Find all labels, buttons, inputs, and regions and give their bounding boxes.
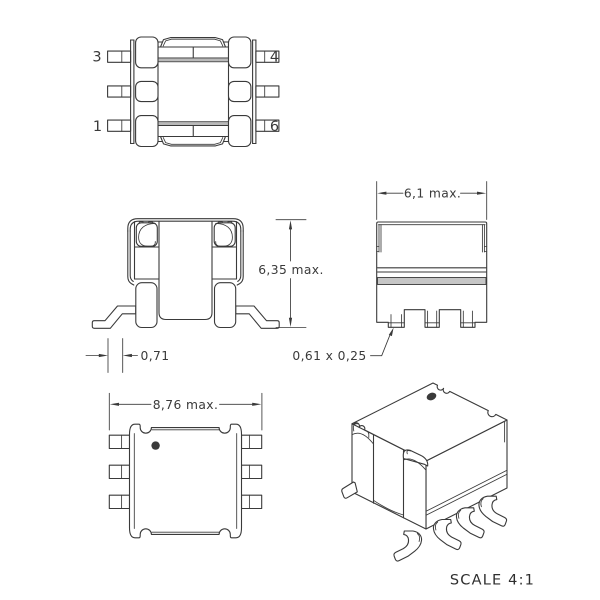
dimension-body-width: 6,1 max. — [377, 182, 487, 220]
top-view: 3 4 1 6 — [92, 37, 279, 147]
core-edge-band-bottom — [158, 122, 229, 126]
dimension-height: 6,35 max. — [258, 220, 324, 328]
pin-label-6: 6 — [270, 119, 279, 135]
front-view: 6,35 max. 0,71 — [86, 219, 324, 373]
front-leg-left — [136, 283, 157, 328]
pin-label-1: 1 — [93, 119, 102, 135]
bottom-body-outline — [130, 424, 242, 538]
front-upper-pads — [136, 223, 235, 247]
pin-label-4: 4 — [270, 49, 279, 65]
side-flange-band — [378, 278, 487, 285]
callout-lead-section: 0,61 x 0,25 — [292, 328, 393, 363]
front-leg-right — [215, 283, 236, 328]
dim-text-lead-thickness: 0,71 — [141, 349, 170, 363]
top-view-pins — [108, 51, 279, 131]
technical-drawing-page: 3 4 1 6 — [0, 0, 600, 600]
front-center-tube — [159, 222, 212, 320]
dim-text-lead-section: 0,61 x 0,25 — [292, 349, 366, 363]
front-view-leads — [92, 306, 279, 328]
pin-label-3: 3 — [92, 49, 101, 65]
side-body-outline — [377, 222, 487, 327]
dim-text-body-width: 6,1 max. — [404, 187, 461, 201]
dim-text-height: 6,35 max. — [258, 263, 324, 277]
iso-view — [342, 383, 507, 561]
top-view-core — [158, 38, 229, 146]
dimension-lead-thickness: 0,71 — [86, 339, 169, 373]
drawing-canvas: 3 4 1 6 — [0, 0, 600, 600]
polarity-dot — [151, 441, 159, 449]
core-edge-band-top — [158, 58, 229, 62]
bottom-view: 8,76 max. — [109, 393, 262, 538]
scale-note: SCALE 4:1 — [450, 573, 535, 589]
dim-text-overall-width: 8,76 max. — [153, 398, 219, 412]
